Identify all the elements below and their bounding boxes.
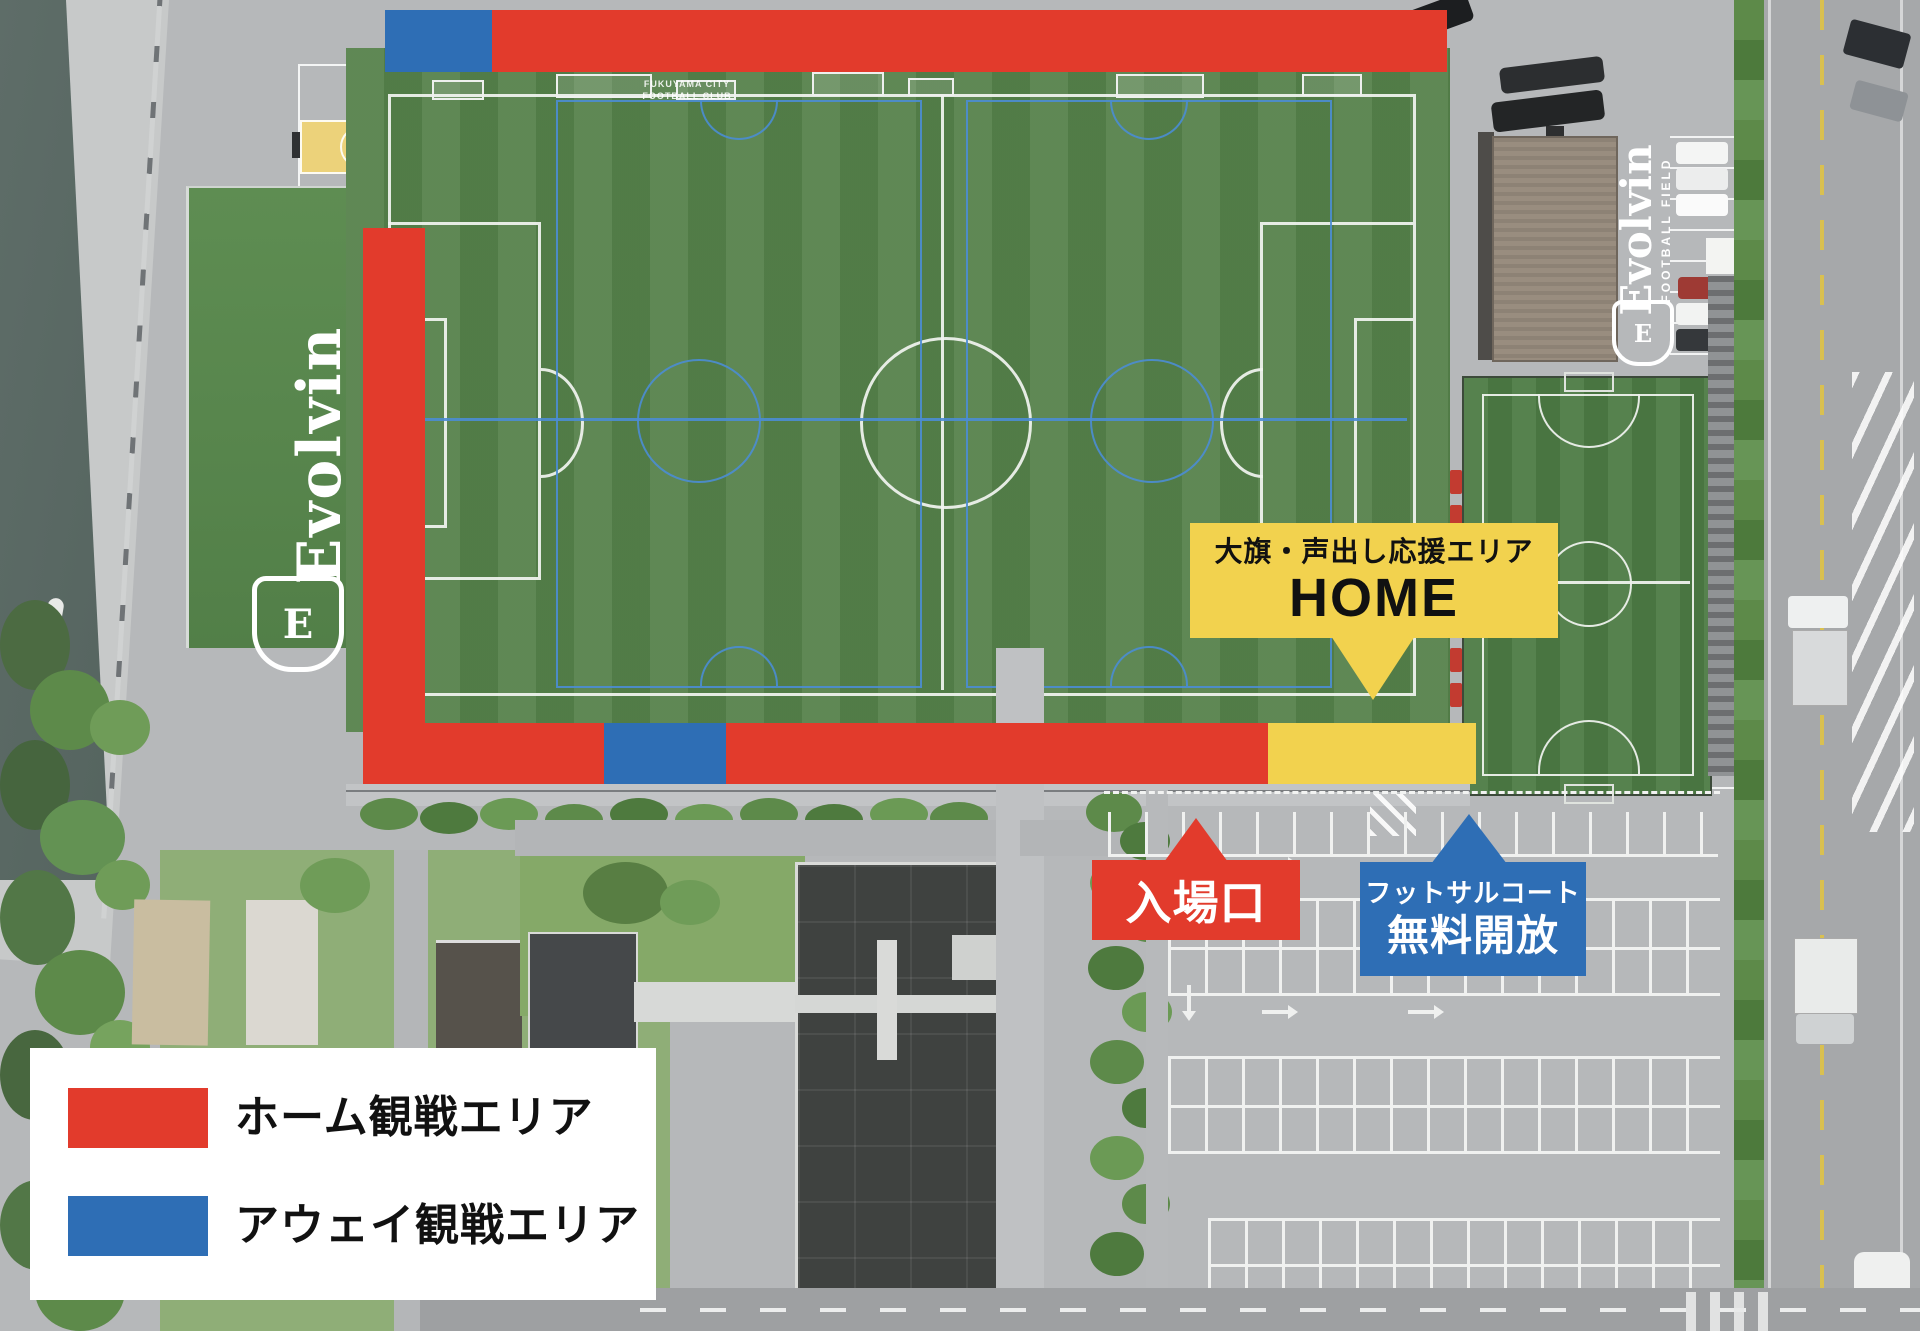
support-area-callout: 大旗・声出し応援エリア HOME bbox=[1190, 523, 1558, 638]
road-edge-line bbox=[1768, 0, 1771, 1331]
legend-swatch-away bbox=[68, 1196, 208, 1256]
tree bbox=[660, 880, 720, 925]
training-goal bbox=[1116, 74, 1204, 98]
tree bbox=[583, 862, 668, 924]
truck-trailer bbox=[1794, 938, 1858, 1014]
bank-brand-text: Evolvin bbox=[285, 285, 355, 625]
building-connector bbox=[634, 982, 795, 1022]
truck-trailer bbox=[1792, 630, 1848, 706]
legend-item-home: ホーム観戦エリア bbox=[30, 1048, 656, 1174]
home-area-bar-left bbox=[363, 228, 425, 784]
legend: ホーム観戦エリア アウェイ観戦エリア bbox=[30, 1048, 656, 1300]
blue-center-circle-right bbox=[1090, 359, 1214, 483]
roof-tower bbox=[877, 940, 897, 1060]
access-road bbox=[515, 820, 1020, 856]
rooftop-unit bbox=[1546, 126, 1564, 136]
entrance-pointer bbox=[1164, 818, 1228, 862]
parking-row bbox=[1168, 1056, 1720, 1154]
parked-car bbox=[1676, 168, 1728, 190]
sand-patch bbox=[246, 900, 318, 1045]
road-hatch-zone bbox=[1852, 372, 1914, 832]
support-area-pointer bbox=[1331, 636, 1415, 700]
tree bbox=[1090, 1232, 1144, 1276]
roof-crest: E bbox=[1612, 300, 1674, 366]
support-area-callout-line2: HOME bbox=[1289, 569, 1459, 627]
parking-row-divider bbox=[1208, 1264, 1720, 1267]
tree bbox=[1090, 1040, 1144, 1084]
truck-cab bbox=[1788, 596, 1848, 628]
away-area-bar-top bbox=[385, 10, 492, 72]
club-name-on-turf: FUKUYAMA CITY FOOTBALL CLUB bbox=[612, 78, 762, 102]
home-area-bar-bottom bbox=[425, 723, 1268, 784]
goal-box-right bbox=[1354, 318, 1413, 528]
tree bbox=[0, 870, 75, 965]
bench-seat bbox=[1450, 648, 1462, 672]
tree bbox=[1088, 946, 1144, 990]
home-area-bar-top bbox=[492, 10, 1447, 72]
entrance-callout: 入場口 bbox=[1092, 860, 1300, 940]
hedge-strip bbox=[1734, 0, 1764, 1331]
training-goal bbox=[908, 78, 954, 96]
futsal-callout-line2: 無料開放 bbox=[1387, 910, 1559, 962]
clubhouse-roof bbox=[1492, 136, 1618, 362]
training-goal bbox=[432, 80, 484, 100]
futsal-center-circle bbox=[1546, 541, 1632, 627]
club-name-line2: FOOTBALL CLUB bbox=[612, 90, 762, 102]
crosswalk bbox=[1686, 1292, 1770, 1331]
hedge-bush bbox=[360, 798, 418, 830]
futsal-goal bbox=[1564, 372, 1614, 392]
parked-car bbox=[1676, 194, 1728, 216]
entrance-callout-label: 入場口 bbox=[1126, 867, 1267, 933]
roof-block bbox=[952, 935, 1002, 980]
roof-walkway bbox=[795, 995, 1020, 1013]
bus bbox=[1499, 56, 1605, 94]
futsal-callout: フットサルコート 無料開放 bbox=[1360, 862, 1586, 976]
tree bbox=[90, 700, 150, 755]
legend-label-home: ホーム観戦エリア bbox=[235, 1088, 594, 1148]
club-name-line1: FUKUYAMA CITY bbox=[612, 78, 762, 90]
backboard bbox=[292, 132, 300, 158]
futsal-pointer bbox=[1431, 814, 1507, 864]
futsal-goal bbox=[1564, 784, 1614, 804]
tree bbox=[1090, 1136, 1144, 1180]
dirt-patch bbox=[132, 899, 211, 1045]
parking-arrow bbox=[1187, 985, 1191, 1011]
hedge-bush bbox=[420, 802, 478, 834]
truck-cab bbox=[1796, 1014, 1854, 1044]
building-roof-large bbox=[795, 862, 1026, 1331]
legend-label-away: アウェイ観戦エリア bbox=[235, 1196, 640, 1256]
legend-item-away: アウェイ観戦エリア bbox=[30, 1174, 656, 1300]
roof-crest-letter: E bbox=[1634, 319, 1652, 348]
stadium-aerial-map: Evolvin E FUKUYAMA CITY FOOTBALL CLUB Ev… bbox=[0, 0, 1920, 1331]
futsal-callout-line1: フットサルコート bbox=[1365, 876, 1580, 910]
small-building bbox=[436, 940, 522, 1052]
bench-seat bbox=[1450, 683, 1462, 707]
legend-swatch-home bbox=[68, 1088, 208, 1148]
bench-seat bbox=[1450, 470, 1462, 494]
parking-arrow bbox=[1408, 1010, 1434, 1014]
parking-row-divider bbox=[1168, 1105, 1720, 1108]
blue-center-circle-left bbox=[637, 359, 761, 483]
support-area-callout-line1: 大旗・声出し応援エリア bbox=[1214, 535, 1533, 569]
roof-brand-text: Evolvin bbox=[1615, 144, 1659, 315]
building-roof-small bbox=[528, 932, 638, 1053]
bank-crest: E bbox=[252, 576, 344, 672]
support-area-bar-bottom bbox=[1268, 723, 1476, 784]
parking-arrow bbox=[1262, 1010, 1288, 1014]
away-area-bar-bottom bbox=[604, 723, 726, 784]
training-goal bbox=[1302, 74, 1362, 96]
parked-car bbox=[1676, 142, 1728, 164]
training-goal bbox=[812, 72, 884, 96]
bank-crest-letter: E bbox=[283, 601, 314, 648]
tree bbox=[300, 858, 370, 913]
